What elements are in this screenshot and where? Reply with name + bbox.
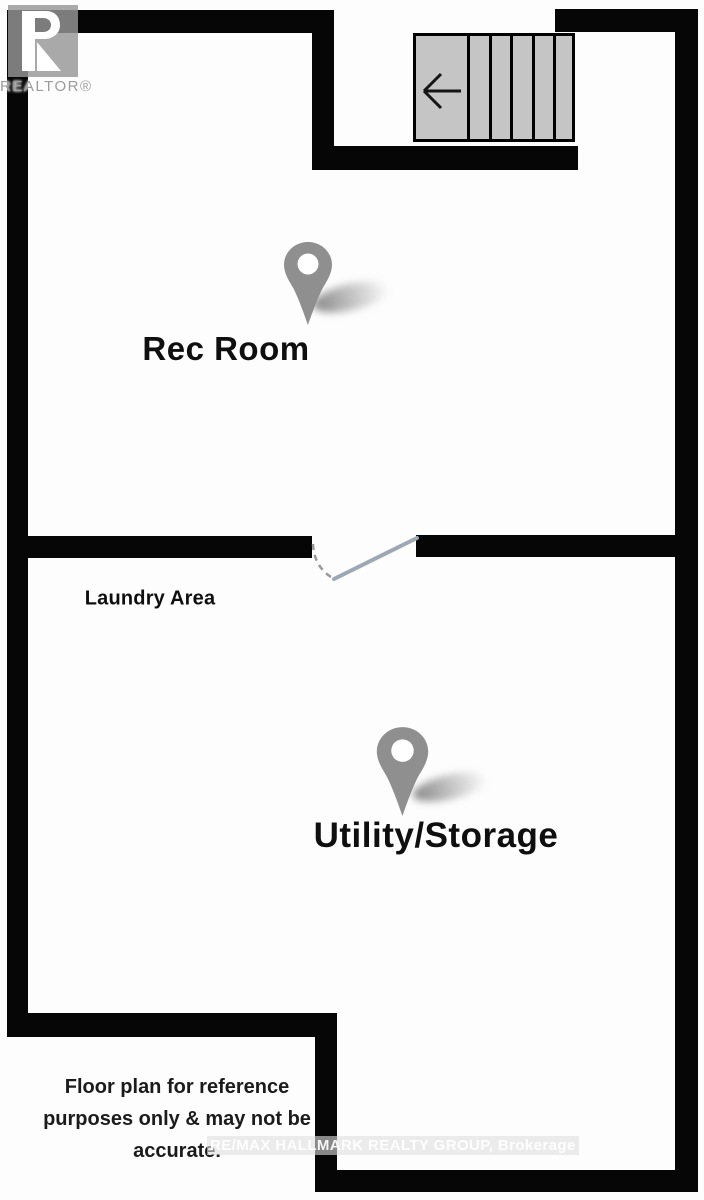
wall-left: [7, 10, 28, 1037]
room-label-rec-room: Rec Room: [142, 330, 309, 368]
realtor-logo: REALTOR®: [8, 5, 94, 77]
map-pin-icon: [375, 726, 430, 817]
disclaimer-line-2: purposes only & may not be: [43, 1103, 311, 1135]
stair-tread-divider: [489, 36, 492, 139]
room-label-utility-storage: Utility/Storage: [314, 816, 559, 856]
door-swing-arc: [313, 544, 331, 577]
wall-middle-left: [7, 536, 312, 558]
realtor-block-r-icon: [8, 5, 78, 77]
brokerage-watermark: RE/MAX HALLMARK REALTY GROUP, Brokerage: [207, 1136, 579, 1155]
stair-tread-divider: [510, 36, 513, 139]
stair-tread-divider: [553, 36, 556, 139]
map-pin-icon: [283, 241, 333, 326]
wall-middle-right: [416, 535, 675, 557]
staircase: [413, 33, 575, 142]
door-leaf: [334, 538, 417, 579]
wall-stair-niche-bottom: [312, 146, 578, 170]
wall-bottom-right: [315, 1170, 698, 1192]
wall-lower-vertical: [315, 1013, 337, 1192]
wall-right: [675, 9, 698, 1192]
room-label-laundry-area: Laundry Area: [85, 588, 216, 611]
stair-tread-divider: [532, 36, 535, 139]
realtor-r-glyph: [8, 5, 78, 77]
wall-bottom-left: [7, 1013, 337, 1037]
stairs-direction-arrow-icon: [420, 36, 480, 139]
disclaimer-line-1: Floor plan for reference: [43, 1071, 311, 1103]
floor-plan: Rec Room Laundry Area Utility/Storage Fl…: [0, 0, 704, 1200]
door: [300, 528, 430, 590]
realtor-wordmark: REALTOR®: [0, 78, 100, 95]
